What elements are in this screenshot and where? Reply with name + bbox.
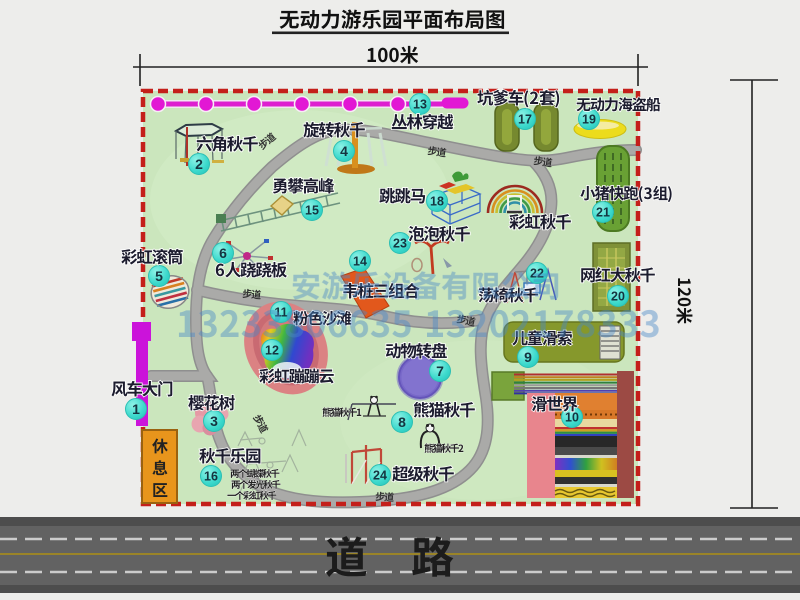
svg-text:17: 17 <box>518 113 532 127</box>
svg-text:21: 21 <box>596 206 610 220</box>
svg-text:16: 16 <box>204 470 218 484</box>
svg-text:3: 3 <box>210 413 218 429</box>
svg-text:1: 1 <box>132 401 140 417</box>
svg-text:2: 2 <box>195 156 203 172</box>
svg-text:15: 15 <box>305 204 319 218</box>
svg-text:7: 7 <box>436 363 444 379</box>
svg-text:5: 5 <box>155 268 163 284</box>
svg-text:8: 8 <box>398 414 406 430</box>
svg-text:18: 18 <box>430 195 444 209</box>
svg-text:4: 4 <box>340 143 348 159</box>
svg-text:6: 6 <box>219 245 227 261</box>
svg-text:12: 12 <box>265 344 279 358</box>
svg-text:9: 9 <box>524 349 532 365</box>
svg-text:23: 23 <box>393 237 407 251</box>
svg-text:19: 19 <box>582 113 596 127</box>
svg-text:13: 13 <box>413 98 427 112</box>
svg-text:10: 10 <box>565 411 579 425</box>
svg-text:14: 14 <box>353 255 367 269</box>
svg-text:20: 20 <box>611 290 625 304</box>
svg-text:24: 24 <box>373 469 387 483</box>
